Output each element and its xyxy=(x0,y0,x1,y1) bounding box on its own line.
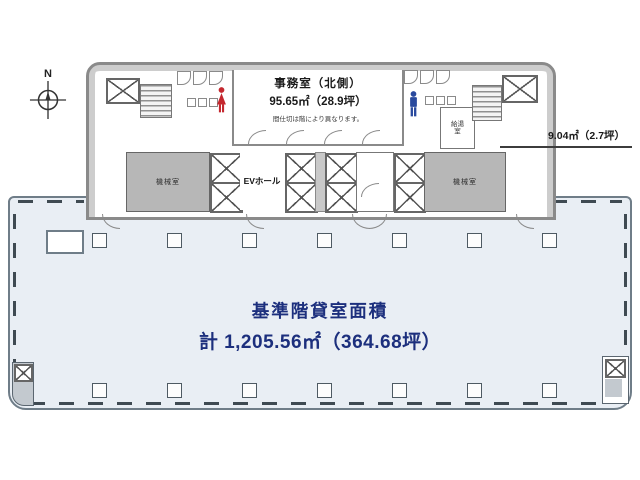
elevator-x-icon xyxy=(325,182,358,213)
column-marker xyxy=(242,383,257,398)
column-marker xyxy=(467,383,482,398)
elevator-x-icon xyxy=(106,78,140,104)
rental-area-total: 計 1,205.56㎡（364.68坪） xyxy=(10,327,630,354)
office-title: 事務室（北側） xyxy=(234,75,402,91)
machine-room-left: 機械室 xyxy=(126,152,210,212)
kitchenette-label: 給湯室 xyxy=(450,121,465,136)
elevator-core: 機械室 EVホール 機械室 xyxy=(126,152,504,212)
column-marker xyxy=(467,233,482,248)
machine-room-right: 機械室 xyxy=(424,152,506,212)
kitchenette-room: 給湯室 xyxy=(440,107,475,149)
column-marker xyxy=(167,383,182,398)
stairs-right xyxy=(472,85,502,121)
toilet-stall xyxy=(209,71,223,85)
female-figure-icon xyxy=(215,87,228,118)
elevator-x-icon xyxy=(285,182,318,213)
elevator-x-icon xyxy=(502,75,538,103)
toilet-stalls-left xyxy=(177,71,223,85)
column-marker xyxy=(542,233,557,248)
sink xyxy=(187,98,196,107)
rental-area-title: 基準階貸室面積 xyxy=(10,298,630,323)
floorplan-canvas: N xyxy=(0,0,640,480)
elevator-x-icon xyxy=(14,364,33,382)
north-label: N xyxy=(26,68,70,80)
building-core: 事務室（北側） 95.65㎡（28.9坪） 間仕切は階により異なります。 xyxy=(86,62,556,220)
column-marker xyxy=(242,233,257,248)
service-shaft xyxy=(12,362,34,406)
mullion-dashes xyxy=(18,200,84,203)
column-marker xyxy=(92,233,107,248)
door-arc xyxy=(361,183,379,197)
elevator-x-icon xyxy=(210,153,243,184)
toilet-stall xyxy=(193,71,207,85)
office-note: 間仕切は階により異なります。 xyxy=(234,113,402,123)
mullion-dashes xyxy=(552,200,622,203)
area-annotation: 9.04㎡（2.7坪） xyxy=(548,128,640,143)
column-marker xyxy=(92,383,107,398)
mullion-dashes xyxy=(30,402,610,405)
office-room: 事務室（北側） 95.65㎡（28.9坪） 間仕切は階により異なります。 xyxy=(232,70,404,146)
male-figure-icon xyxy=(407,91,420,122)
elevator-x-icon xyxy=(210,182,243,213)
service-shaft xyxy=(602,356,629,404)
sink-counter-right xyxy=(425,96,456,105)
elevator-x-icon xyxy=(394,182,426,213)
column-marker xyxy=(317,233,332,248)
sink xyxy=(425,96,434,105)
column-marker xyxy=(167,233,182,248)
shaft-fill xyxy=(605,379,622,397)
ev-hall: EVホール xyxy=(240,152,284,210)
toilet-stall xyxy=(177,71,191,85)
elevator-x-icon xyxy=(285,153,318,184)
stairs-left xyxy=(140,84,172,118)
column-marker xyxy=(392,383,407,398)
elevator-x-icon xyxy=(605,359,626,378)
compass-icon xyxy=(29,81,67,119)
service-room xyxy=(356,152,394,212)
sink xyxy=(436,96,445,105)
toilet-stall xyxy=(436,70,450,84)
column-marker xyxy=(317,383,332,398)
elevator-x-icon xyxy=(325,153,358,184)
elevator-x-icon xyxy=(394,153,426,184)
door-arc xyxy=(362,130,380,144)
north-compass: N xyxy=(26,68,70,124)
office-area: 95.65㎡（28.9坪） xyxy=(234,93,402,109)
rental-area: 基準階貸室面積 計 1,205.56㎡（364.68坪） xyxy=(8,196,632,410)
sink xyxy=(447,96,456,105)
column-marker xyxy=(392,233,407,248)
door-arc xyxy=(324,130,342,144)
toilet-stall xyxy=(404,70,418,84)
sink xyxy=(198,98,207,107)
door-arc xyxy=(286,130,304,144)
toilet-stalls-right xyxy=(404,70,450,84)
annotation-leader-line xyxy=(500,146,632,148)
toilet-stall xyxy=(420,70,434,84)
column-marker xyxy=(542,383,557,398)
sink-counter-left xyxy=(187,98,218,107)
wall-notch xyxy=(46,230,84,254)
door-arc xyxy=(248,130,266,144)
